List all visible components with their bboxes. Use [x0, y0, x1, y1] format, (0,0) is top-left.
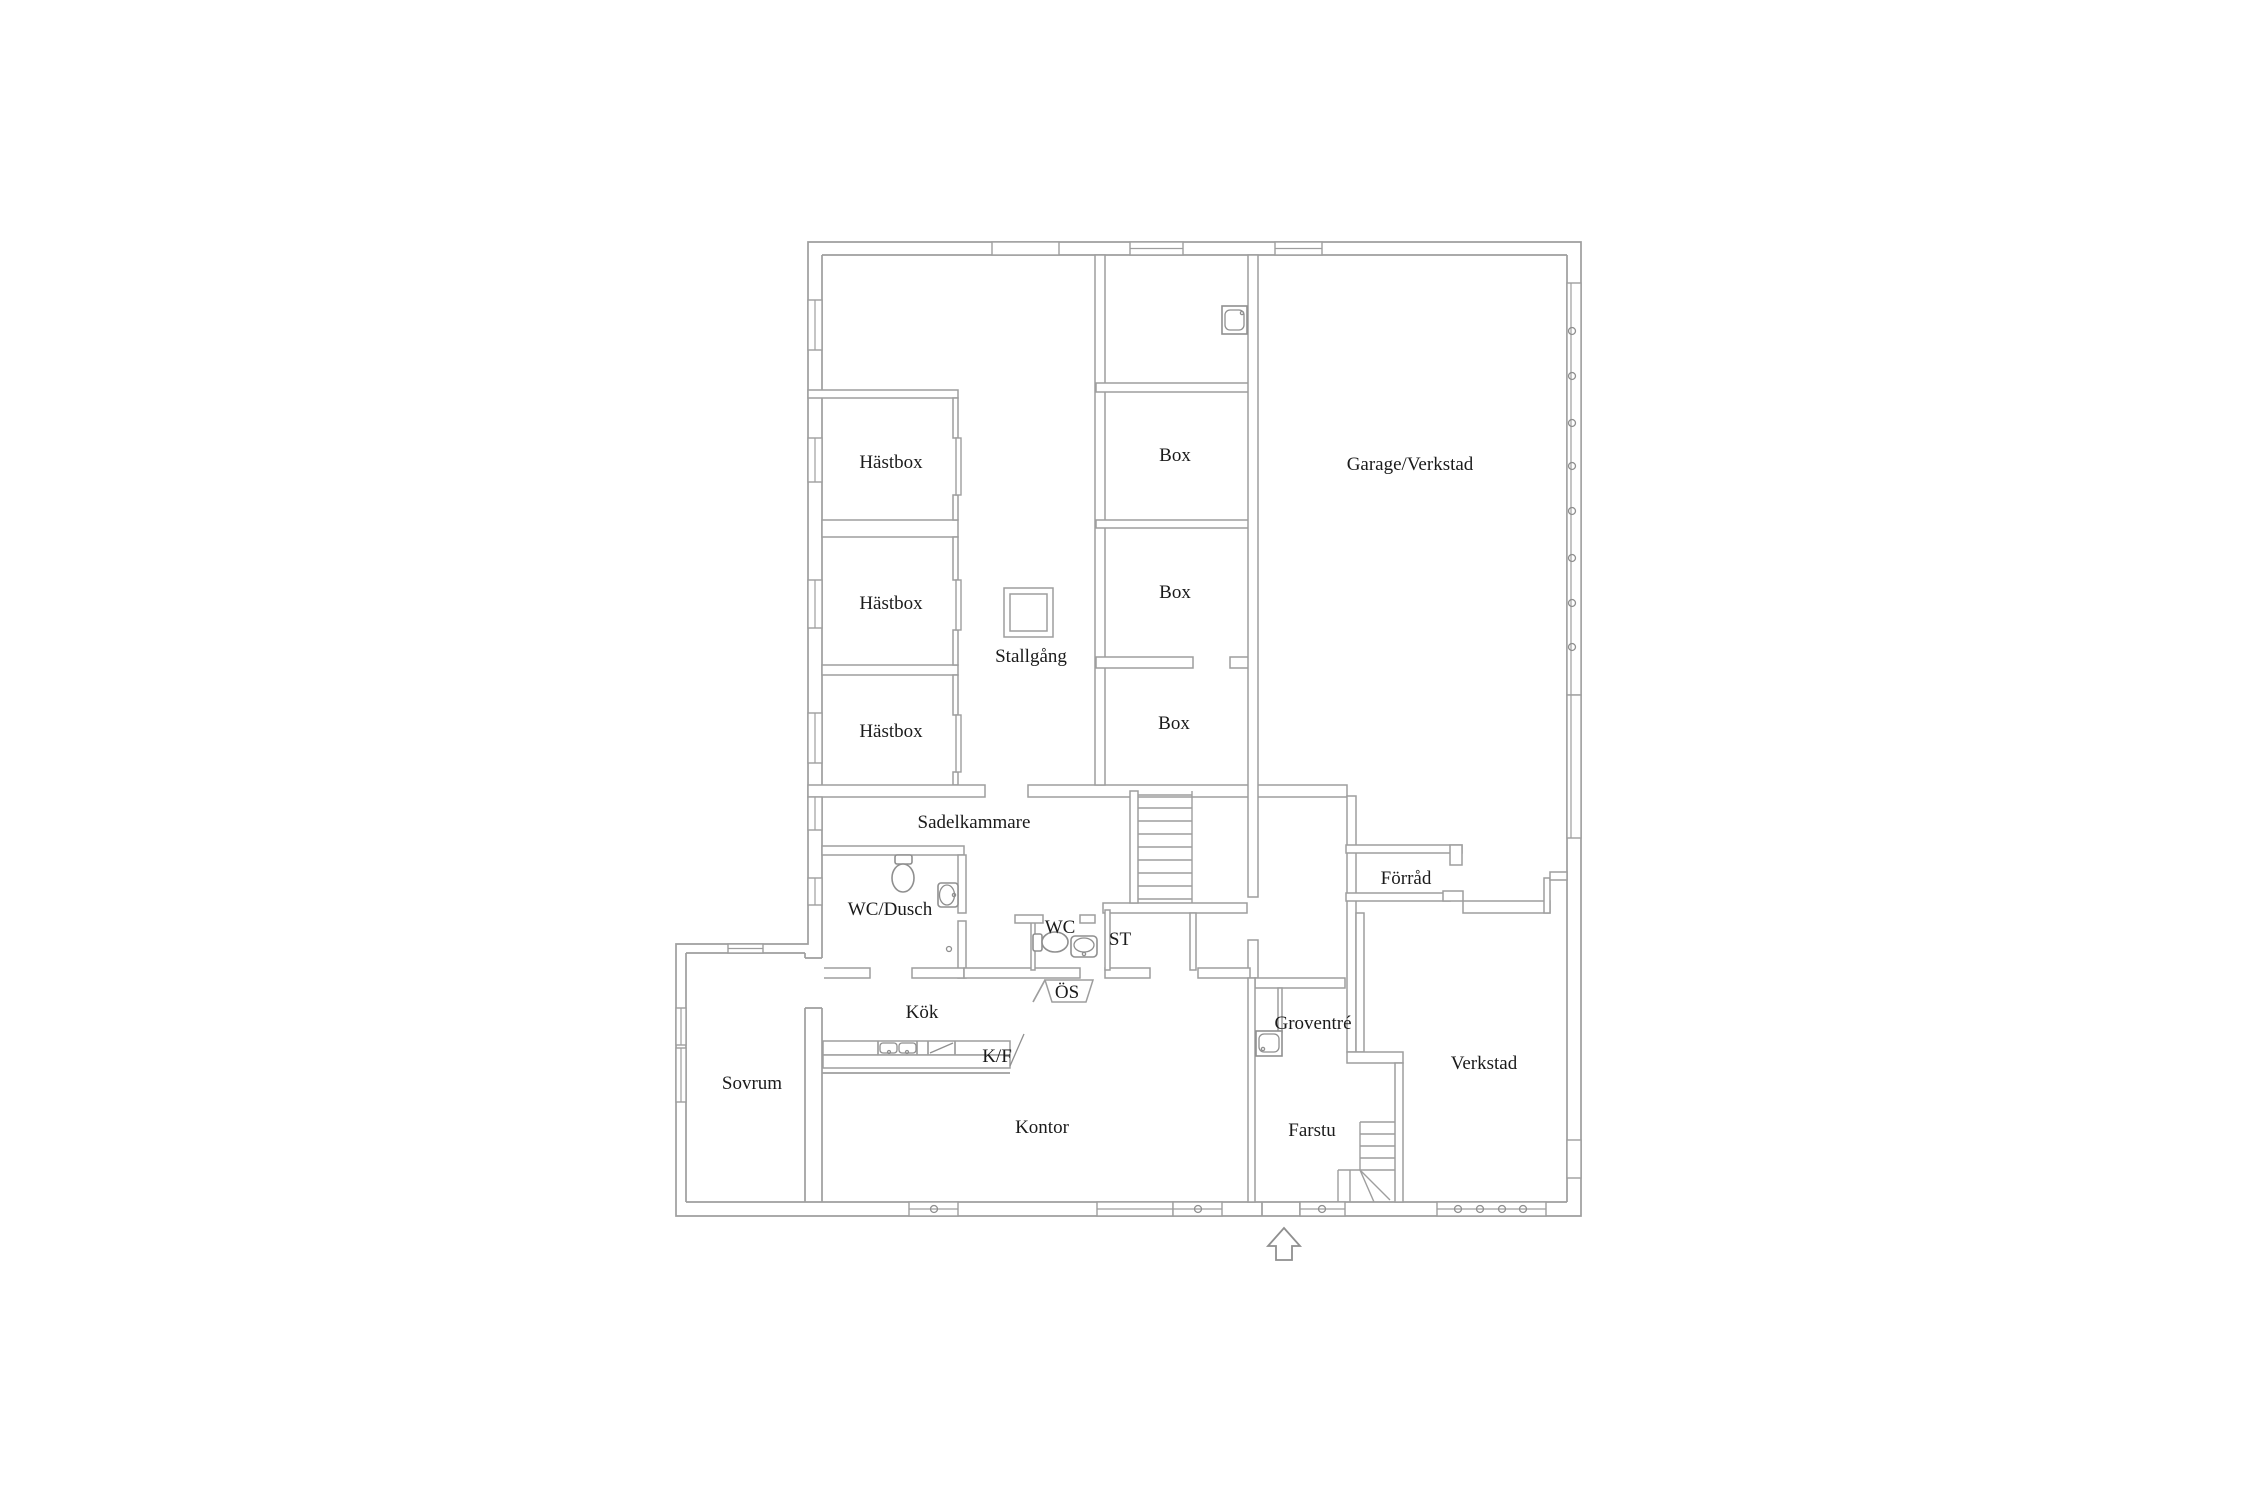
- room-label-garage-verkstad: Garage/Verkstad: [1347, 454, 1474, 475]
- floorplan-page: Hästbox Hästbox Hästbox Box Box Box Stal…: [0, 0, 2250, 1500]
- room-label-verkstad: Verkstad: [1451, 1053, 1518, 1074]
- drain-symbol: [947, 947, 952, 952]
- room-label-farstu: Farstu: [1288, 1120, 1336, 1141]
- room-label-wc-dusch: WC/Dusch: [848, 899, 933, 920]
- room-label-box-1: Box: [1159, 445, 1191, 466]
- floorplan-canvas: Hästbox Hästbox Hästbox Box Box Box Stal…: [0, 0, 2250, 1500]
- farstu-winder-staircase: [1338, 1122, 1395, 1202]
- room-label-kontor: Kontor: [1015, 1117, 1070, 1138]
- room-label-hastbox-3: Hästbox: [859, 721, 923, 742]
- entrance-arrow-icon: [1268, 1228, 1300, 1260]
- hastbox3-door-leaf: [956, 715, 961, 772]
- fixtures: [823, 306, 1282, 1068]
- room-label-hastbox-1: Hästbox: [859, 452, 923, 473]
- room-label-stallgang: Stallgång: [995, 646, 1067, 667]
- room-label-wc: WC: [1045, 917, 1076, 938]
- room-label-sadelkammare: Sadelkammare: [918, 812, 1031, 833]
- room-label-groventre: Groventré: [1274, 1013, 1351, 1034]
- toilet-icon: [892, 855, 914, 892]
- room-label-forrad: Förråd: [1381, 868, 1432, 889]
- room-label-kf: K/F: [982, 1046, 1012, 1067]
- sink-icon: [1222, 306, 1247, 334]
- room-label-hastbox-2: Hästbox: [859, 593, 923, 614]
- hastbox2-door-leaf: [956, 580, 961, 630]
- wall-sink-icon: [938, 883, 958, 907]
- corner-sink-icon: [1071, 936, 1097, 957]
- room-label-sovrum: Sovrum: [722, 1073, 782, 1094]
- hastbox1-door-leaf: [956, 438, 961, 495]
- main-staircase: [1138, 791, 1192, 903]
- sink-icon: [1256, 1031, 1282, 1056]
- room-label-box-3: Box: [1158, 713, 1190, 734]
- fridge-freezer-door-icon: [1010, 1034, 1024, 1066]
- stallgang-hatch: [1004, 588, 1053, 637]
- room-label-st: ST: [1109, 929, 1132, 950]
- room-label-kok: Kök: [906, 1002, 939, 1023]
- room-label-box-2: Box: [1159, 582, 1191, 603]
- room-label-os: ÖS: [1055, 982, 1079, 1003]
